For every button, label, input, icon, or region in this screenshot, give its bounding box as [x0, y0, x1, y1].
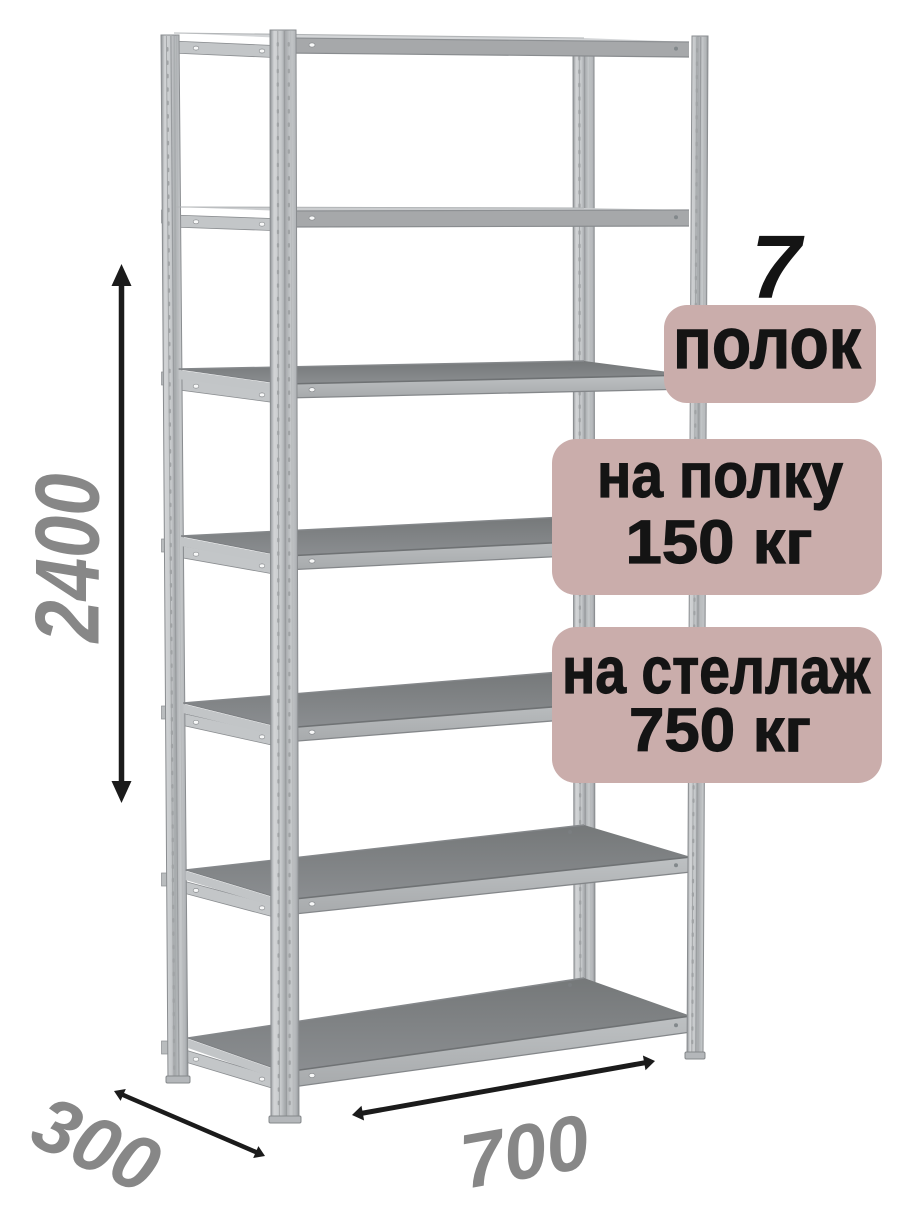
svg-text:150 кг: 150 кг — [626, 508, 813, 576]
svg-text:750 кг: 750 кг — [629, 696, 811, 764]
svg-text:на полку: на полку — [597, 441, 843, 511]
svg-text:7: 7 — [751, 218, 805, 318]
svg-text:полок: полок — [673, 304, 862, 384]
svg-text:2400: 2400 — [16, 473, 118, 644]
